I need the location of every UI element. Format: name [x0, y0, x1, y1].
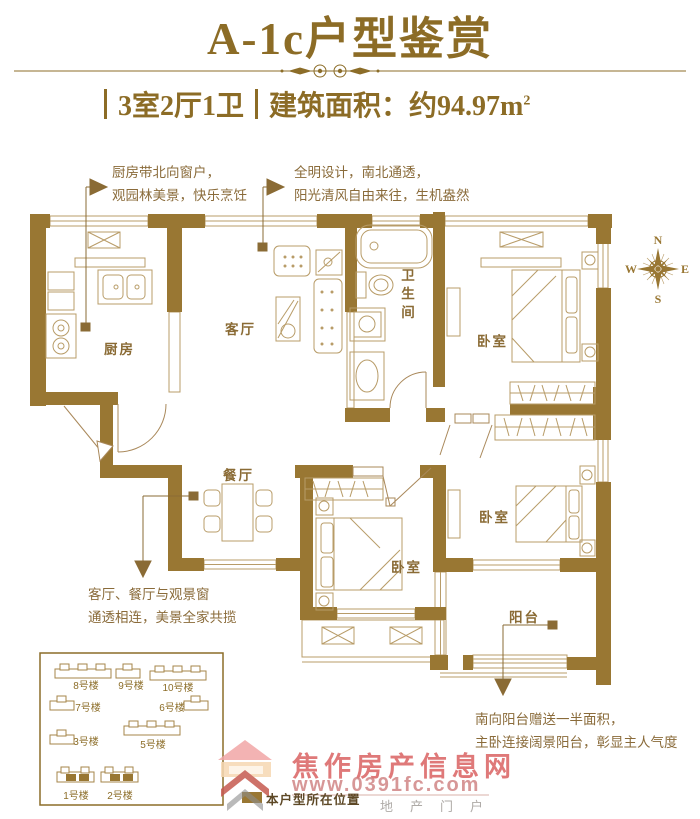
building-label-5: 5号楼	[140, 736, 166, 751]
watermark-url: www.0391fc.com	[292, 774, 480, 797]
compass-s: S	[655, 292, 662, 306]
bed-icon	[316, 518, 402, 590]
building-10	[150, 666, 206, 680]
leader-balcony	[495, 621, 557, 695]
spec-bar: 3室2厅1卫 建筑面积：约94.97m2	[104, 84, 530, 124]
leader-daylight	[258, 179, 284, 251]
room-spec: 3室2厅1卫	[118, 84, 244, 124]
room-label-bedroom-south: 卧室	[391, 556, 422, 576]
building-7	[50, 696, 74, 710]
building-3	[50, 730, 74, 744]
toilet-icon	[356, 272, 366, 298]
dining-furniture	[204, 484, 272, 541]
building-6	[184, 696, 208, 710]
building-label-1: 1号楼	[63, 787, 89, 802]
room-label-bedroom-north: 卧室	[477, 330, 508, 350]
building-1-highlighted	[57, 767, 94, 782]
dresser-icon	[448, 490, 460, 538]
down-arrow-icon	[495, 679, 511, 695]
room-label-kitchen: 厨房	[104, 338, 135, 358]
annotation-kitchen: 厨房带北向窗户， 观园林美景，快乐烹饪	[112, 161, 247, 207]
annotation-living: 客厅、餐厅与观景窗 通透相连，美景全家共揽	[88, 583, 237, 629]
building-label-9: 9号楼	[118, 677, 144, 692]
bed-icon	[516, 486, 582, 542]
compass-w: W	[625, 262, 637, 276]
right-arrow-icon	[267, 179, 284, 195]
room-label-bath: 卫生间	[396, 268, 416, 324]
site-plan	[40, 653, 262, 805]
kitchen-fixtures	[46, 270, 152, 358]
building-9	[116, 664, 140, 678]
page-title: A-1c户型鉴赏	[0, 2, 700, 67]
bathtub-icon	[356, 225, 432, 268]
fridge-icon	[48, 272, 74, 290]
building-label-10: 10号楼	[162, 679, 193, 694]
building-label-3: 3号楼	[73, 733, 99, 748]
building-8	[55, 664, 111, 678]
washer-icon	[350, 308, 385, 341]
bathroom-fixtures	[350, 225, 432, 400]
down-arrow-icon	[135, 561, 151, 577]
spec-divider	[255, 89, 258, 119]
compass-n: N	[654, 233, 663, 247]
floorplan-poster: N E S W	[0, 0, 700, 819]
right-arrow-icon	[90, 179, 107, 195]
area-text: 建筑面积：约94.97m2	[269, 84, 530, 124]
compass-e: E	[681, 262, 689, 276]
sofa-icon	[314, 279, 342, 353]
spec-divider	[104, 89, 107, 119]
watermark-tagline: 地产门户	[380, 796, 500, 815]
dining-table-icon	[222, 484, 253, 541]
wardrobe-icons	[305, 382, 595, 500]
room-label-balcony: 阳台	[509, 606, 540, 626]
building-label-7: 7号楼	[75, 699, 101, 714]
building-5	[124, 721, 180, 735]
bedroom-north-furniture	[447, 252, 598, 362]
building-2-highlighted	[101, 767, 138, 782]
bed-icon	[512, 270, 580, 362]
room-label-bedroom-east: 卧室	[479, 506, 510, 526]
living-furniture	[274, 246, 342, 353]
room-label-living: 客厅	[225, 318, 256, 338]
building-label-8: 8号楼	[73, 677, 99, 692]
bedroom-south-furniture	[316, 498, 402, 610]
doors	[64, 372, 492, 506]
dresser-icon	[447, 288, 460, 336]
building-label-6: 6号楼	[159, 699, 185, 714]
armchair-icon	[274, 246, 310, 276]
compass-icon: N E S W	[625, 233, 689, 306]
leader-kitchen	[81, 179, 107, 331]
bedroom-east-furniture	[448, 466, 595, 556]
building-label-2: 2号楼	[107, 787, 133, 802]
basin-icon	[350, 352, 384, 400]
room-label-dining: 餐厅	[223, 464, 254, 484]
annotation-daylight: 全明设计，南北通透， 阳光清风自由来往，生机盎然	[294, 161, 470, 207]
